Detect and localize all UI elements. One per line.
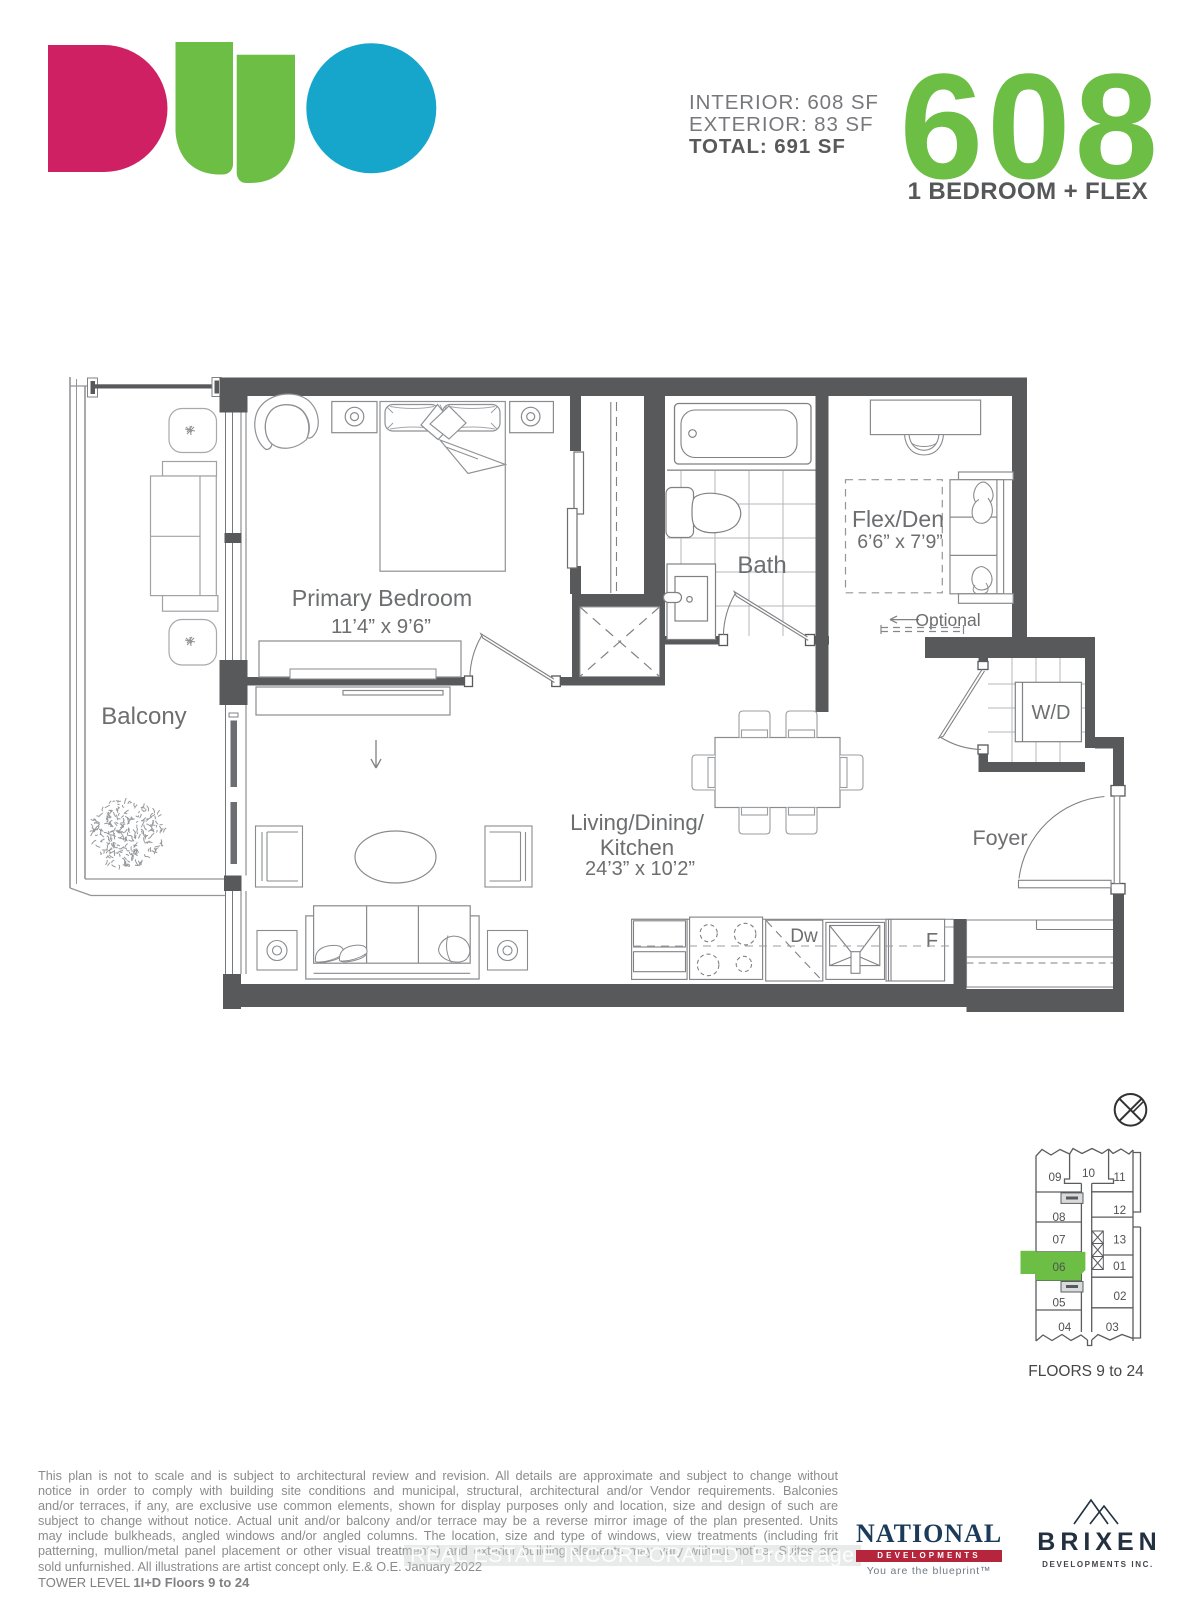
svg-text:10: 10	[1082, 1167, 1096, 1180]
svg-text:Bath: Bath	[737, 552, 786, 579]
svg-text:Living/Dining/: Living/Dining/	[570, 810, 705, 835]
svg-text:12: 12	[1113, 1204, 1126, 1217]
svg-text:6’6” x 7’9”: 6’6” x 7’9”	[857, 531, 943, 553]
svg-text:24’3” x 10’2”: 24’3” x 10’2”	[585, 858, 695, 880]
svg-text:W/D: W/D	[1032, 702, 1071, 724]
svg-text:06: 06	[1052, 1261, 1065, 1274]
svg-text:Primary Bedroom: Primary Bedroom	[292, 585, 472, 611]
svg-text:Foyer: Foyer	[973, 826, 1028, 850]
svg-text:09: 09	[1048, 1171, 1061, 1184]
svg-text:01: 01	[1113, 1260, 1126, 1273]
svg-text:Dw: Dw	[790, 926, 818, 947]
svg-text:F: F	[926, 930, 938, 952]
svg-text:11’4” x 9’6”: 11’4” x 9’6”	[331, 615, 431, 638]
svg-text:05: 05	[1052, 1297, 1066, 1310]
svg-text:FLOORS 9 to 24: FLOORS 9 to 24	[1028, 1363, 1144, 1380]
svg-text:07: 07	[1052, 1234, 1065, 1247]
svg-text:Kitchen: Kitchen	[600, 835, 674, 860]
svg-text:Flex/Den: Flex/Den	[852, 506, 944, 532]
svg-text:02: 02	[1113, 1290, 1126, 1303]
svg-text:04: 04	[1058, 1321, 1072, 1334]
svg-text:03: 03	[1106, 1321, 1119, 1334]
svg-text:08: 08	[1052, 1211, 1065, 1224]
svg-text:13: 13	[1113, 1234, 1126, 1247]
svg-text:11: 11	[1114, 1171, 1126, 1184]
svg-text:Balcony: Balcony	[101, 703, 186, 730]
